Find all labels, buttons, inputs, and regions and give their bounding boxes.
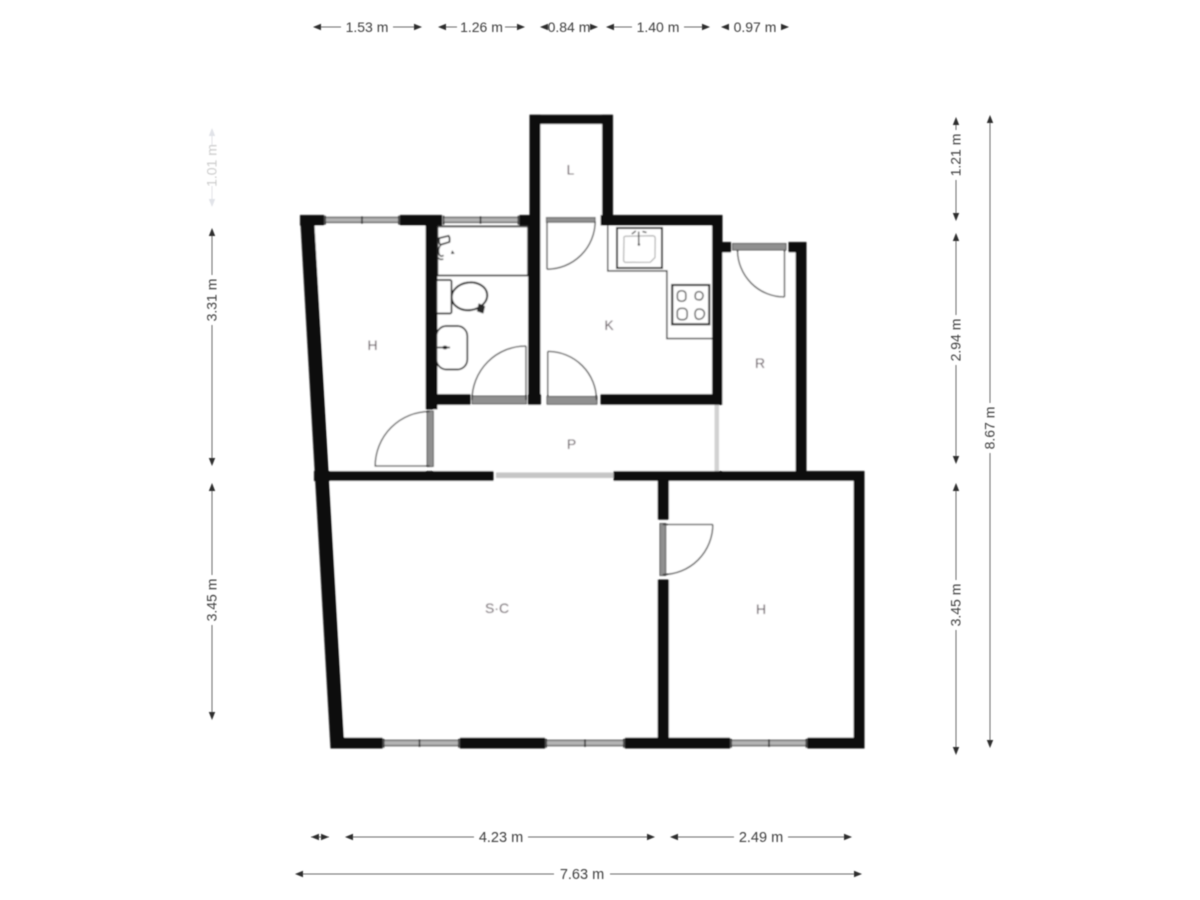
- svg-text:1.21 m: 1.21 m: [948, 134, 964, 177]
- svg-text:L: L: [567, 162, 575, 178]
- svg-text:0.97 m: 0.97 m: [734, 19, 777, 35]
- svg-text:2.94 m: 2.94 m: [948, 319, 964, 362]
- svg-text:1.01 m: 1.01 m: [204, 144, 220, 187]
- svg-text:K: K: [604, 317, 614, 333]
- svg-text:3.45 m: 3.45 m: [948, 584, 964, 627]
- svg-text:1.40 m: 1.40 m: [637, 19, 680, 35]
- svg-text:0.84 m: 0.84 m: [548, 19, 591, 35]
- svg-text:2.49 m: 2.49 m: [739, 830, 783, 846]
- svg-text:S·C: S·C: [485, 600, 509, 616]
- svg-text:H: H: [756, 601, 766, 617]
- svg-text:1.26 m: 1.26 m: [460, 19, 503, 35]
- svg-text:1.53 m: 1.53 m: [346, 19, 389, 35]
- svg-text:H: H: [367, 337, 377, 353]
- svg-text:R: R: [755, 355, 765, 371]
- svg-text:7.63 m: 7.63 m: [560, 867, 604, 883]
- svg-text:8.67 m: 8.67 m: [982, 407, 998, 450]
- svg-text:3.31 m: 3.31 m: [204, 279, 220, 322]
- svg-text:4.23 m: 4.23 m: [479, 830, 523, 846]
- svg-text:P: P: [567, 436, 576, 452]
- svg-text:3.45 m: 3.45 m: [204, 579, 220, 622]
